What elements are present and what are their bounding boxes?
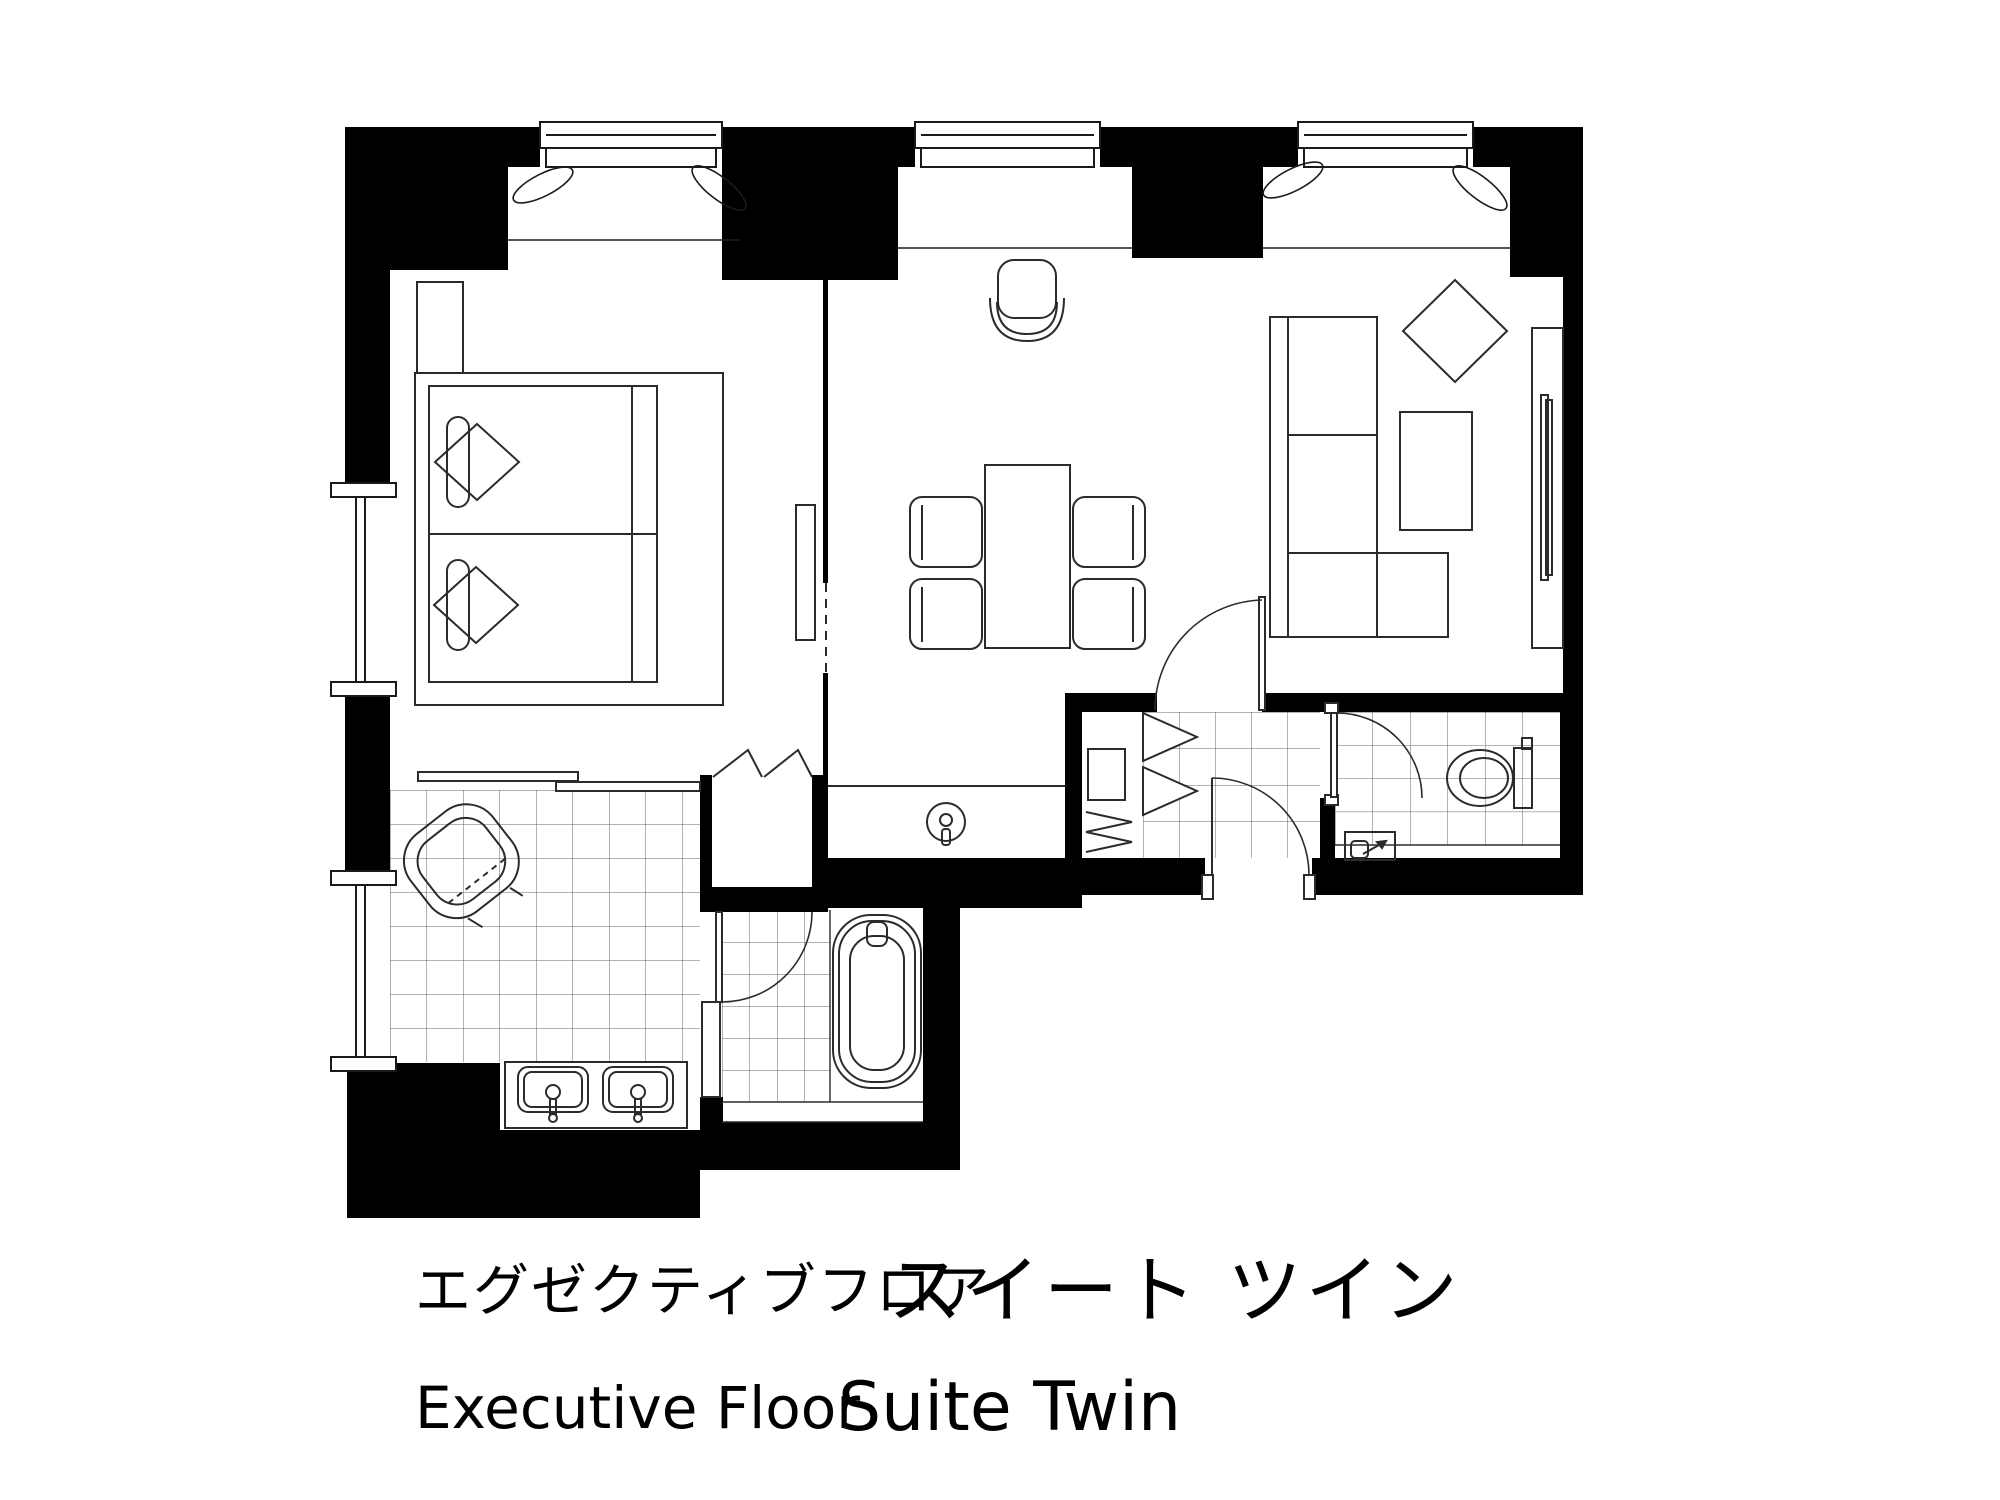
- curtain-icon: [509, 160, 578, 210]
- sectional-sofa: [1270, 317, 1448, 637]
- wall-west-upper: [345, 270, 390, 497]
- wall-closet-niche-left: [700, 775, 712, 912]
- bedroom-tv-console: [796, 505, 815, 640]
- dining-chair: [1073, 497, 1145, 567]
- decor-cushion: [1403, 280, 1507, 382]
- powder-room-floor: [390, 790, 700, 1062]
- wall-hall-north-a: [1082, 693, 1157, 712]
- wall-top-right-band: [1473, 127, 1583, 167]
- wall-closet-niche-right: [812, 775, 828, 887]
- door-swing-arc: [1155, 600, 1262, 710]
- faucet-icon: [942, 829, 950, 845]
- partition-bedroom-living-lower: [823, 673, 828, 777]
- wet-bar-sink-icon: [927, 803, 965, 841]
- door-jamb: [1304, 875, 1315, 899]
- dining-table: [985, 465, 1070, 648]
- wall-bath-door-stub: [700, 1097, 723, 1130]
- bedroom-closet-bifold-icon: [713, 750, 812, 777]
- desk-chair: [990, 260, 1064, 341]
- nightstand: [417, 282, 463, 373]
- wall-south-under-bath: [700, 1122, 960, 1170]
- dining-set: [910, 465, 1145, 649]
- window-west-bedroom: [331, 483, 396, 696]
- coffee-table: [1400, 412, 1472, 530]
- wall-closet-west: [1065, 693, 1082, 858]
- door-leaf: [1259, 597, 1265, 710]
- dining-chair: [1073, 579, 1145, 649]
- window-north-middle: [915, 122, 1100, 167]
- bolster-icon: [447, 560, 469, 650]
- wall-under-bedroom-closet: [700, 887, 828, 912]
- double-sink-counter: [505, 1062, 687, 1128]
- door-jamb: [1325, 703, 1338, 713]
- title-en-floor: Executive Floor: [415, 1374, 860, 1442]
- window-bays: [508, 155, 1513, 248]
- window-north-living: [1298, 122, 1473, 167]
- wall-bathroom-east: [923, 908, 960, 1122]
- door-living-to-hall: [1155, 597, 1265, 710]
- sink-basin: [518, 1067, 588, 1122]
- wall-top-left-corner: [345, 127, 508, 270]
- wall-hall-south-a: [1082, 858, 1205, 895]
- window-north-bedroom: [540, 122, 722, 167]
- wall-top-band-b: [722, 127, 915, 167]
- bolster-icon: [447, 417, 469, 507]
- window-west-powder: [331, 871, 396, 1071]
- wall-bottom-left-corner: [347, 1063, 500, 1218]
- title-jp-room: スイート ツイン: [888, 1248, 1462, 1334]
- hangers-icon: [1086, 812, 1132, 852]
- wall-top-right-corner: [1510, 167, 1583, 277]
- wall-pier-3: [1132, 167, 1263, 258]
- wall-south-under-sinks: [500, 1130, 700, 1218]
- titles: エグゼクティブフロア スイート ツイン Executive Floor Suit…: [415, 1248, 1462, 1447]
- wall-under-wet-bar: [828, 858, 1082, 908]
- bath-door-leaf: [716, 912, 722, 1002]
- door-jamb: [1202, 875, 1213, 899]
- sink-basin: [603, 1067, 673, 1122]
- wall-top-band-a: [508, 127, 540, 167]
- wall-east: [1563, 277, 1583, 693]
- bed-frame: [415, 373, 723, 705]
- bath-partition: [702, 1002, 720, 1097]
- wall-pier-2: [722, 167, 898, 280]
- wall-hall-north-b: [1262, 693, 1560, 712]
- bedroom: [415, 282, 826, 791]
- dining-chair: [910, 497, 982, 567]
- sliding-door-bedroom-powder: [418, 772, 700, 791]
- shower-floor: [722, 910, 830, 1102]
- wall-top-band-c: [1100, 127, 1298, 167]
- wet-bar: [828, 786, 1065, 845]
- floor-plan-page: エグゼクティブフロア スイート ツイン Executive Floor Suit…: [0, 0, 2000, 1500]
- wall-hall-toilet-divider: [1320, 798, 1335, 858]
- partition-bedroom-living-upper: [823, 248, 828, 583]
- floor-plan: エグゼクティブフロア スイート ツイン Executive Floor Suit…: [0, 0, 2000, 1500]
- title-en-room: Suite Twin: [838, 1368, 1181, 1447]
- bathtub: [833, 915, 921, 1088]
- dining-chair: [910, 579, 982, 649]
- tv-board: [1532, 328, 1563, 648]
- twin-bed: [415, 373, 723, 705]
- closet-shelf: [1088, 749, 1125, 800]
- wall-west-middle: [345, 682, 390, 885]
- door-leaf: [1331, 713, 1337, 797]
- faucet-icon: [1377, 841, 1386, 848]
- tub-faucet-icon: [867, 922, 887, 946]
- wall-hall-south-b: [1312, 858, 1583, 895]
